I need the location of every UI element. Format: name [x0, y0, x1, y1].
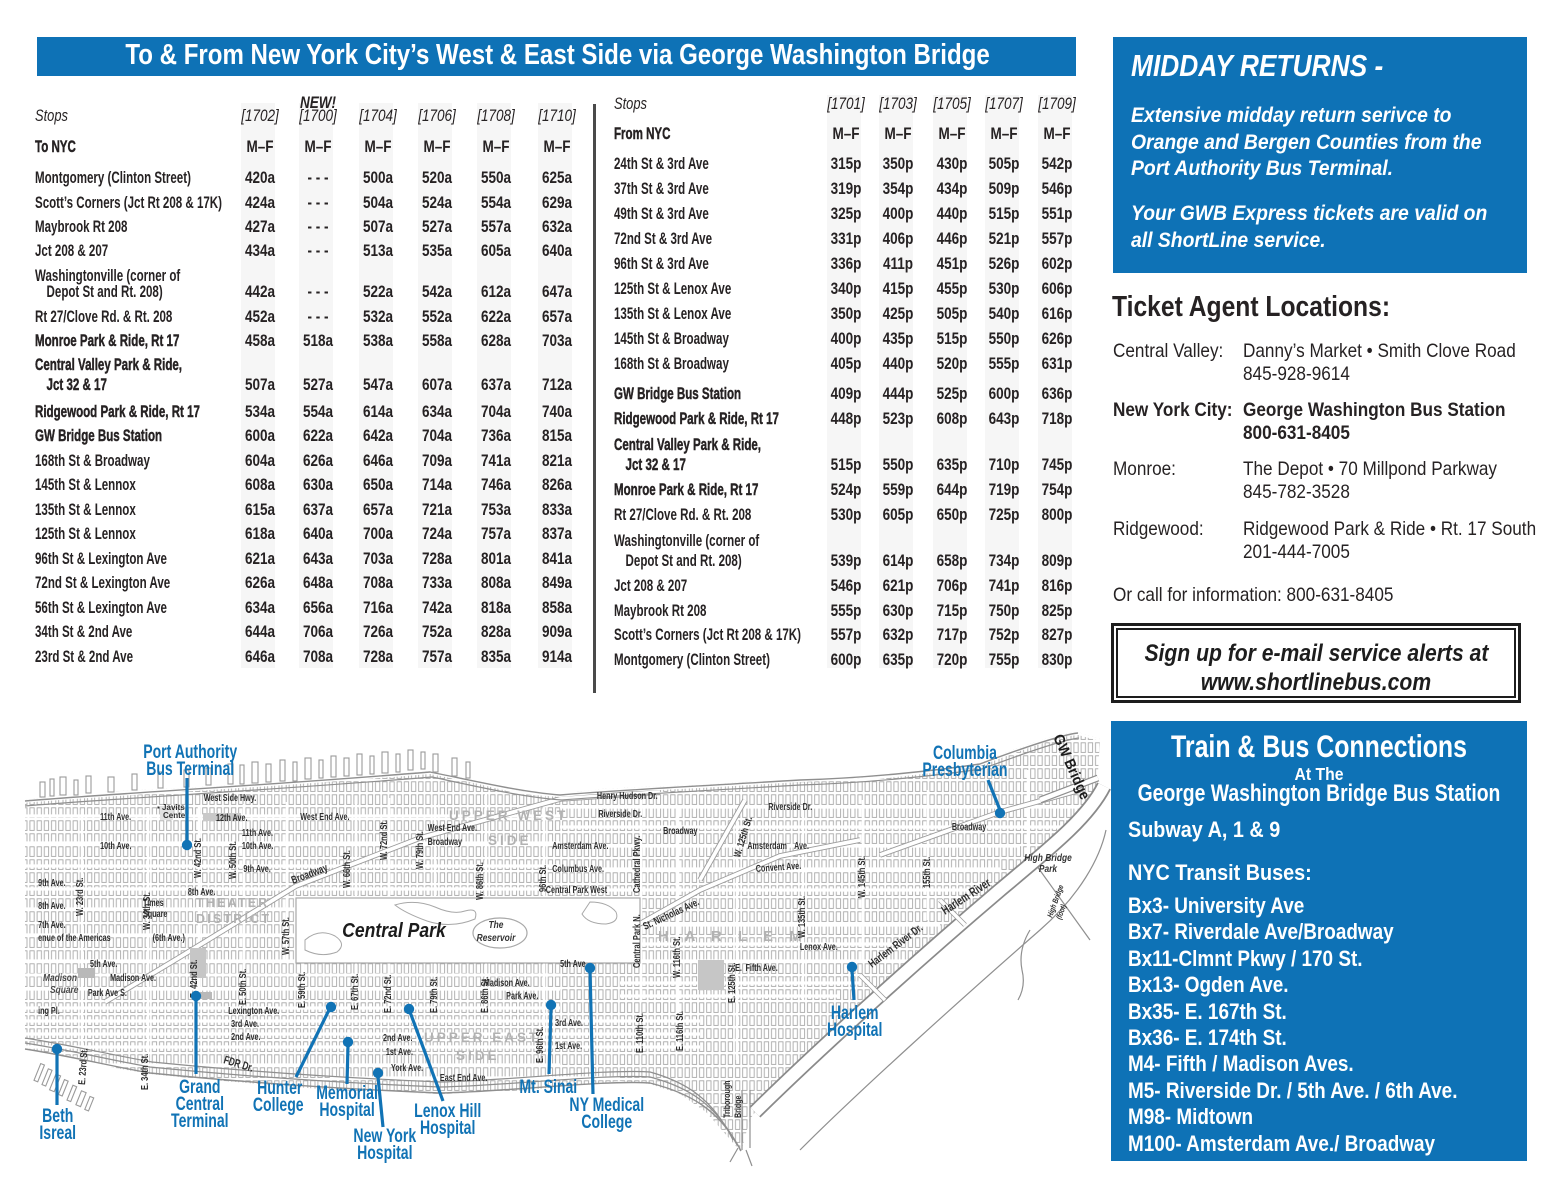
svg-text:11th Ave.: 11th Ave. — [100, 811, 131, 822]
svg-text:E. 96th St.: E. 96th St. — [534, 1027, 545, 1063]
svg-text:2nd Ave.: 2nd Ave. — [231, 1031, 260, 1042]
svg-text:Broadway: Broadway — [428, 836, 463, 847]
svg-text:Amsterdam Ave.: Amsterdam Ave. — [747, 840, 809, 851]
svg-text:9th Ave.: 9th Ave. — [243, 863, 270, 874]
svg-text:Reservoir: Reservoir — [477, 932, 517, 944]
svg-text:3rd Ave.: 3rd Ave. — [231, 1018, 259, 1029]
svg-text:W. 23rd St.: W. 23rd St. — [74, 878, 85, 916]
svg-text:Park Ave S.: Park Ave S. — [88, 987, 127, 998]
svg-text:Madison: Madison — [43, 972, 77, 984]
svg-text:College: College — [253, 1094, 304, 1116]
svg-text:Central Park West: Central Park West — [546, 884, 608, 895]
svg-text:Hospital: Hospital — [357, 1142, 412, 1164]
svg-text:Hospital: Hospital — [319, 1099, 374, 1121]
svg-text:W. 50th St.: W. 50th St. — [227, 841, 238, 879]
svg-text:E. 50th St.: E. 50th St. — [237, 969, 248, 1005]
svg-text:The: The — [489, 919, 505, 931]
svg-text:3rd Ave.: 3rd Ave. — [555, 1017, 583, 1028]
svg-text:enue of the Americas: enue of the Americas — [38, 932, 111, 943]
svg-text:Central Park N.: Central Park N. — [631, 914, 642, 968]
svg-text:E. 67th St.: E. 67th St. — [349, 974, 360, 1010]
svg-text:SIDE: SIDE — [488, 833, 532, 848]
svg-text:E. 125th St.: E. 125th St. — [726, 963, 737, 1003]
svg-text:Bridge: Bridge — [732, 1095, 743, 1118]
svg-text:York Ave.: York Ave. — [391, 1062, 423, 1073]
svg-text:7th Ave.: 7th Ave. — [38, 919, 65, 930]
svg-text:UPPER EAST: UPPER EAST — [424, 1030, 540, 1045]
svg-text:THEATER: THEATER — [196, 896, 270, 910]
svg-text:9th Ave.: 9th Ave. — [38, 877, 65, 888]
svg-text:Henry Hudson Dr.: Henry Hudson Dr. — [597, 790, 658, 801]
svg-text:1st Ave.: 1st Ave. — [386, 1046, 413, 1057]
svg-text:E. 34th St.: E. 34th St. — [139, 1054, 150, 1090]
svg-text:Triborough: Triborough — [721, 1080, 732, 1118]
svg-text:96th St.: 96th St. — [537, 865, 548, 892]
svg-text:8th Ave.: 8th Ave. — [38, 900, 65, 911]
svg-text:W. 79th St.: W. 79th St. — [414, 831, 425, 869]
svg-text:Park: Park — [1039, 863, 1058, 875]
svg-text:Bus Terminal: Bus Terminal — [146, 758, 234, 780]
svg-text:Riverside Dr.: Riverside Dr. — [768, 801, 812, 812]
svg-text:E. 116th St.: E. 116th St. — [674, 1011, 685, 1051]
svg-text:E. 59th St.: E. 59th St. — [296, 972, 307, 1008]
svg-text:2nd Ave.: 2nd Ave. — [383, 1032, 412, 1043]
svg-text:SIDE: SIDE — [456, 1048, 500, 1063]
svg-text:(6th Ave.): (6th Ave.) — [153, 932, 185, 943]
svg-text:12th Ave.: 12th Ave. — [216, 812, 247, 823]
svg-text:W. 135th St.: W. 135th St. — [796, 896, 807, 938]
svg-text:W. 86th St.: W. 86th St. — [474, 862, 485, 900]
svg-text:1st Ave.: 1st Ave. — [555, 1040, 582, 1051]
svg-text:West Side Hwy.: West Side Hwy. — [204, 792, 256, 803]
svg-text:East End Ave.: East End Ave. — [440, 1072, 487, 1083]
svg-text:Presbyterian: Presbyterian — [922, 759, 1007, 781]
svg-text:ing Pl.: ing Pl. — [38, 1005, 60, 1016]
svg-text:Madison Ave.: Madison Ave. — [110, 972, 156, 983]
svg-text:Square: Square — [50, 984, 79, 996]
svg-text:W. 72nd St.: W. 72nd St. — [378, 820, 389, 860]
svg-text:Mt. Sinai: Mt. Sinai — [519, 1076, 577, 1098]
svg-text:Amsterdam Ave.: Amsterdam Ave. — [552, 840, 608, 851]
svg-text:DISTRICT: DISTRICT — [196, 912, 271, 926]
svg-text:College: College — [581, 1111, 632, 1133]
svg-text:10th Ave.: 10th Ave. — [100, 840, 131, 851]
svg-text:Columbus Ave.: Columbus Ave. — [552, 863, 604, 874]
svg-text:E. 86th St.: E. 86th St. — [479, 977, 490, 1013]
svg-text:Broadway: Broadway — [952, 821, 987, 832]
svg-text:West End Ave.: West End Ave. — [300, 811, 349, 822]
svg-text:11th Ave.: 11th Ave. — [242, 827, 273, 838]
svg-text:W. 66th St.: W. 66th St. — [341, 850, 352, 888]
svg-text:Central Park: Central Park — [342, 919, 447, 941]
svg-text:E. 110th St.: E. 110th St. — [634, 1013, 645, 1053]
svg-text:West End Ave.: West End Ave. — [428, 822, 477, 833]
svg-text:Center: Center — [163, 811, 188, 820]
svg-text:W. 34th St.: W. 34th St. — [141, 892, 152, 930]
svg-text:Hospital: Hospital — [827, 1019, 882, 1041]
svg-text:W. 42nd St.: W. 42nd St. — [192, 838, 203, 878]
svg-text:Isreal: Isreal — [39, 1122, 76, 1144]
svg-text:Cathedral Pkwy.: Cathedral Pkwy. — [631, 836, 642, 893]
svg-text:UPPER WEST: UPPER WEST — [449, 808, 568, 823]
svg-text:Riverside Dr.: Riverside Dr. — [598, 808, 642, 819]
svg-text:Hospital: Hospital — [420, 1117, 475, 1139]
svg-text:E. 23rd St.: E. 23rd St. — [76, 1048, 90, 1085]
svg-text:Broadway: Broadway — [663, 825, 698, 836]
svg-text:10th Ave.: 10th Ave. — [242, 840, 273, 851]
svg-text:Terminal: Terminal — [171, 1110, 229, 1132]
svg-text:5th Ave.: 5th Ave. — [90, 958, 117, 969]
svg-text:Lexington Ave.: Lexington Ave. — [228, 1005, 279, 1016]
svg-text:155th St.: 155th St. — [921, 857, 932, 888]
svg-text:W. 116th St.: W. 116th St. — [671, 936, 682, 978]
svg-text:E. Fifth Ave.: E. Fifth Ave. — [735, 962, 778, 973]
svg-text:Park Ave.: Park Ave. — [506, 990, 538, 1001]
svg-text:Madison Ave.: Madison Ave. — [484, 977, 530, 988]
svg-text:W. 145th St.: W. 145th St. — [856, 856, 867, 898]
svg-text:5th Ave.: 5th Ave. — [560, 958, 587, 969]
svg-text:W. 57th St.: W. 57th St. — [280, 917, 291, 955]
svg-text:E. 79th St.: E. 79th St. — [428, 977, 439, 1013]
svg-text:E. 72nd St.: E. 72nd St. — [382, 975, 393, 1013]
